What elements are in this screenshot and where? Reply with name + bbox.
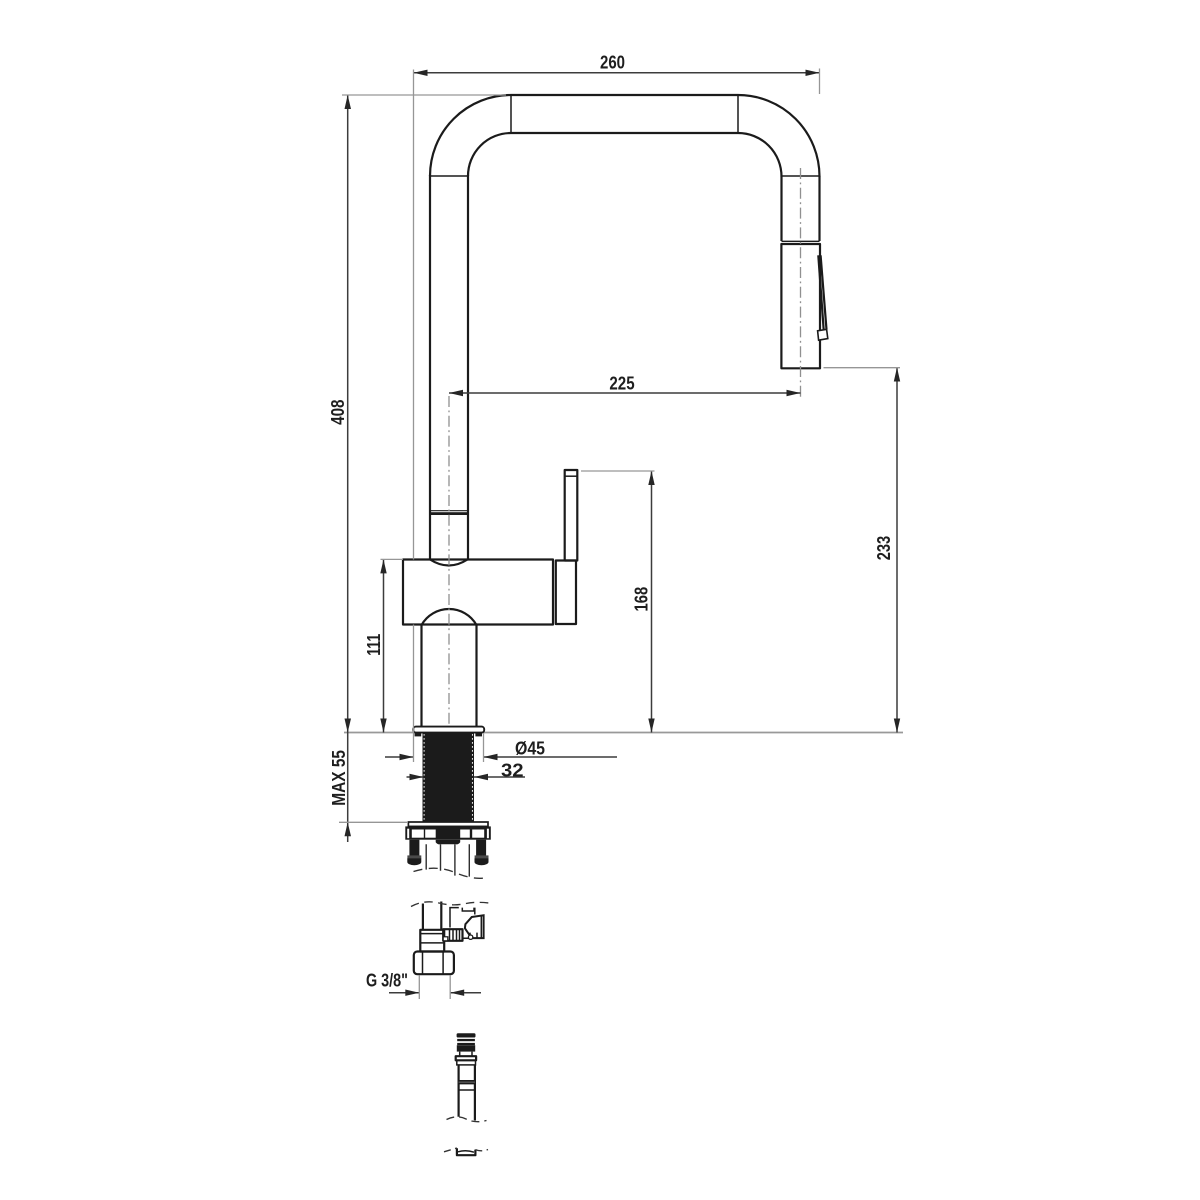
- svg-text:G 3/8": G 3/8": [366, 970, 408, 991]
- svg-text:32: 32: [501, 759, 524, 780]
- svg-text:408: 408: [327, 400, 348, 425]
- svg-text:260: 260: [600, 52, 625, 73]
- svg-text:MAX 55: MAX 55: [328, 750, 349, 806]
- svg-text:225: 225: [609, 372, 634, 393]
- svg-text:168: 168: [630, 587, 651, 612]
- svg-text:233: 233: [873, 536, 894, 561]
- svg-text:111: 111: [363, 634, 384, 656]
- svg-text:Ø45: Ø45: [515, 738, 545, 759]
